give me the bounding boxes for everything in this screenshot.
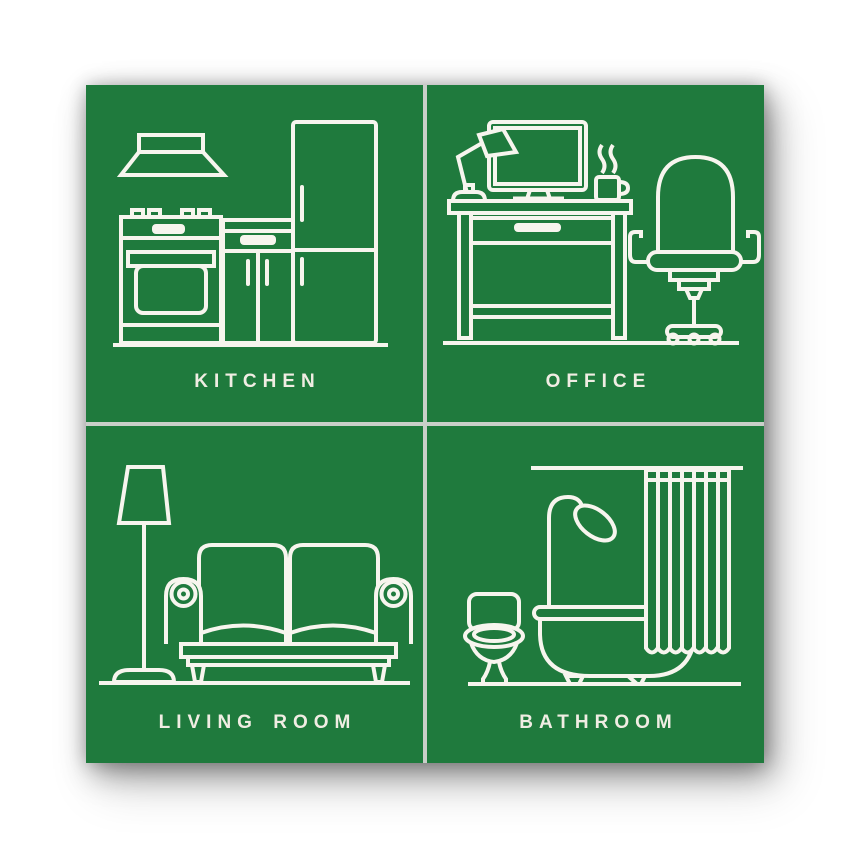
tile-bathroom: BATHROOM [427, 426, 764, 763]
seat-cushion [290, 626, 376, 634]
shower-curtain-icon [646, 470, 729, 653]
toilet-pedestal [483, 662, 506, 684]
drawer-handle [242, 237, 274, 243]
armrest [630, 232, 648, 262]
chair-seat [648, 252, 741, 270]
tile-label-kitchen: KITCHEN [86, 372, 423, 391]
room-icons-poster: KITCHEN [86, 85, 764, 763]
stove-icon [121, 210, 221, 343]
fridge-icon [293, 122, 376, 343]
stove-control-panel [154, 226, 183, 232]
toilet-icon [465, 594, 523, 684]
tile-label-bathroom: BATHROOM [427, 713, 764, 732]
tile-label-office: OFFICE [427, 372, 764, 391]
sofa-icon [166, 545, 411, 682]
desk-icon [449, 201, 631, 338]
mug-icon [596, 145, 628, 200]
tile-living-room: LIVING ROOM [86, 426, 423, 763]
sofa-leg [192, 665, 204, 682]
shower-head-icon [549, 497, 621, 611]
lamp-base [114, 670, 174, 682]
office-chair-icon [630, 157, 759, 344]
cabinet-icon [223, 220, 293, 343]
sofa-leg [373, 665, 385, 682]
lamp-shade [119, 467, 169, 523]
tile-label-living-room: LIVING ROOM [86, 713, 423, 732]
steam-icon [611, 145, 616, 173]
chair-back [658, 157, 733, 255]
steam-icon [600, 145, 605, 173]
seat-cushion [201, 626, 286, 634]
armrest [741, 232, 759, 262]
tile-office: OFFICE [427, 85, 764, 422]
oven-handle [128, 252, 214, 266]
floor-lamp-icon [114, 467, 174, 682]
range-hood-icon [121, 135, 224, 175]
tile-kitchen: KITCHEN [86, 85, 423, 422]
drawer-handle [516, 225, 559, 230]
oven-window [136, 266, 206, 313]
